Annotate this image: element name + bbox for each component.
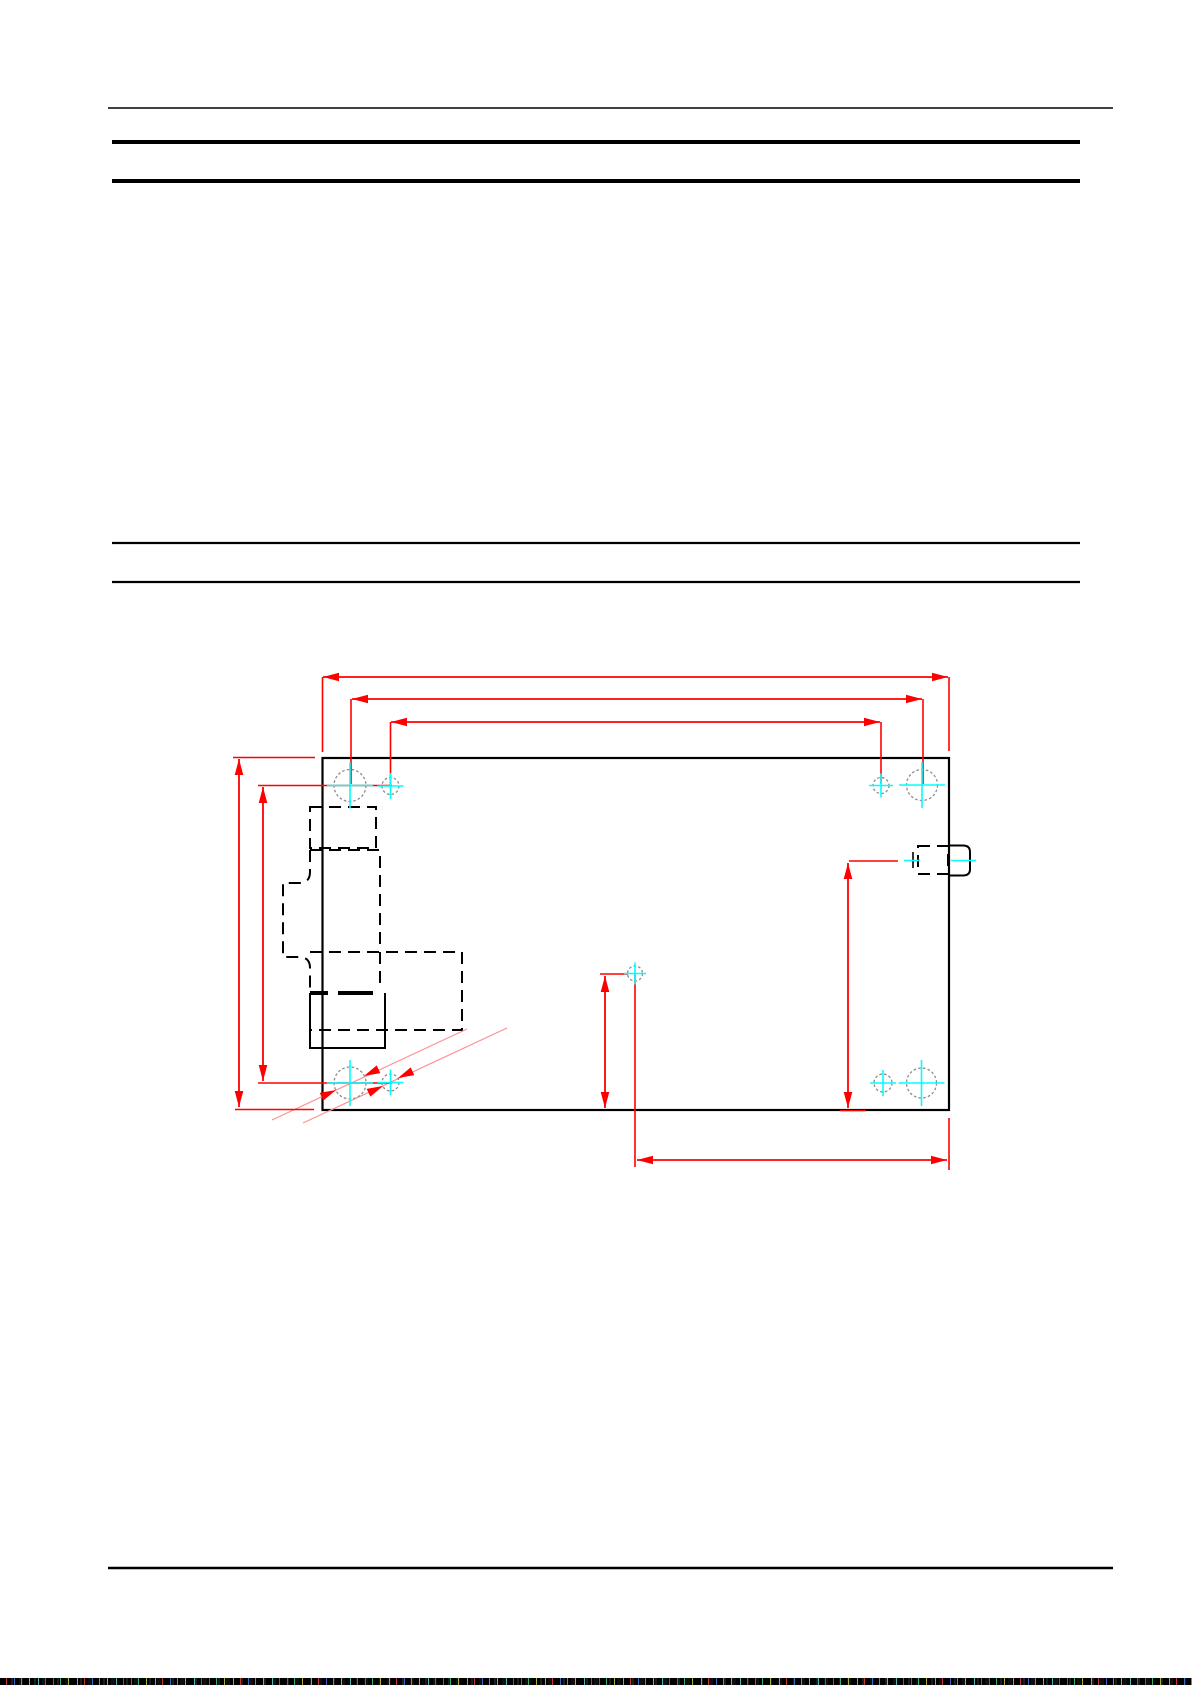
left-connector-d	[310, 993, 385, 1048]
dimension-arrowhead	[259, 1065, 268, 1081]
left-connector-b	[310, 850, 380, 950]
dimension-arrowhead	[367, 1086, 383, 1097]
dimension-arrowhead	[601, 976, 610, 992]
dimension-arrowhead	[235, 759, 244, 775]
dimension-arrowhead	[906, 695, 922, 704]
left-connector-b-step	[283, 850, 310, 991]
dimension-arrowhead	[932, 673, 948, 682]
bottom-noise-strip	[0, 1678, 1192, 1685]
dimension-arrowhead	[931, 1156, 947, 1165]
dimension-arrowhead	[235, 1091, 244, 1107]
dimension-arrowhead	[391, 718, 407, 727]
dimension-arrowhead	[637, 1156, 653, 1165]
dimension-arrowhead	[364, 1065, 380, 1076]
dimension-arrowhead	[844, 863, 853, 879]
dimension-arrowhead	[259, 787, 268, 803]
document-page	[0, 0, 1192, 1685]
left-connector-a	[310, 807, 376, 848]
technical-drawing	[0, 0, 1192, 1685]
dimension-arrowhead	[398, 1067, 414, 1078]
dimension-arrowhead	[352, 695, 368, 704]
dimension-arrowhead	[864, 718, 880, 727]
right-connector-hidden	[918, 846, 948, 874]
dimension-arrowhead	[844, 1092, 853, 1108]
dimension-arrowhead	[601, 1092, 610, 1108]
dimension-arrowhead	[323, 673, 339, 682]
